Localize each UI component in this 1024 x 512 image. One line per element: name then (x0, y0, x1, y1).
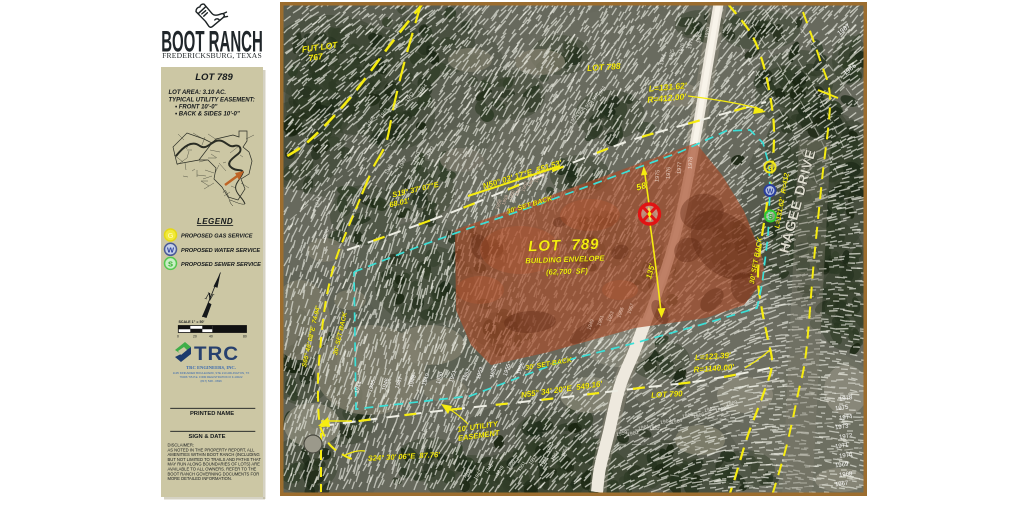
svg-text:TRC: TRC (194, 343, 239, 364)
svg-text:(817) 548 - 0696: (817) 548 - 0696 (200, 379, 222, 383)
svg-text:LOT 789: LOT 789 (528, 236, 600, 255)
svg-text:SIGN & DATE: SIGN & DATE (189, 434, 226, 440)
svg-text:LOT 790: LOT 790 (651, 389, 684, 400)
svg-text:W: W (767, 189, 774, 196)
svg-text:• FRONT 10'-0": • FRONT 10'-0" (175, 105, 218, 111)
svg-text:0: 0 (177, 335, 179, 339)
svg-text:1978: 1978 (687, 157, 694, 170)
svg-text:G: G (168, 231, 174, 240)
svg-text:SCALE 1" = 50': SCALE 1" = 50' (179, 320, 205, 324)
svg-text:PRINTED NAME: PRINTED NAME (190, 411, 234, 417)
svg-text:TRC ENGINEERS, INC.: TRC ENGINEERS, INC. (186, 365, 236, 370)
svg-text:(62,700 SF): (62,700 SF) (546, 266, 588, 276)
svg-text:LEGEND: LEGEND (197, 217, 233, 226)
svg-text:G: G (767, 165, 773, 172)
svg-text:1977: 1977 (676, 162, 683, 175)
svg-text:LOT 789: LOT 789 (195, 72, 233, 83)
svg-text:PROPOSED WATER SERVICE: PROPOSED WATER SERVICE (181, 248, 260, 254)
svg-text:767: 767 (308, 51, 325, 63)
svg-text:20: 20 (193, 335, 197, 339)
svg-text:1975: 1975 (654, 170, 661, 183)
svg-text:PROPOSED SEWER SERVICE: PROPOSED SEWER SERVICE (181, 262, 261, 268)
svg-text:S: S (768, 214, 773, 221)
svg-text:40: 40 (209, 335, 213, 339)
svg-text:LOT AREA: 3.10 AC.: LOT AREA: 3.10 AC. (169, 90, 227, 96)
svg-text:1976: 1976 (665, 167, 672, 180)
svg-text:W: W (167, 245, 175, 254)
svg-text:S: S (168, 259, 173, 268)
svg-text:• BACK & SIDES 10'-0": • BACK & SIDES 10'-0" (175, 112, 240, 118)
svg-text:MORE DETAILED INFORMATION.: MORE DETAILED INFORMATION. (168, 476, 233, 481)
svg-text:PROPOSED GAS SERVICE: PROPOSED GAS SERVICE (181, 234, 253, 240)
svg-text:FREDERICKSBURG, TEXAS: FREDERICKSBURG, TEXAS (162, 51, 262, 60)
svg-text:80: 80 (243, 335, 247, 339)
svg-text:TYPICAL UTILITY EASEMENT:: TYPICAL UTILITY EASEMENT: (169, 98, 255, 104)
